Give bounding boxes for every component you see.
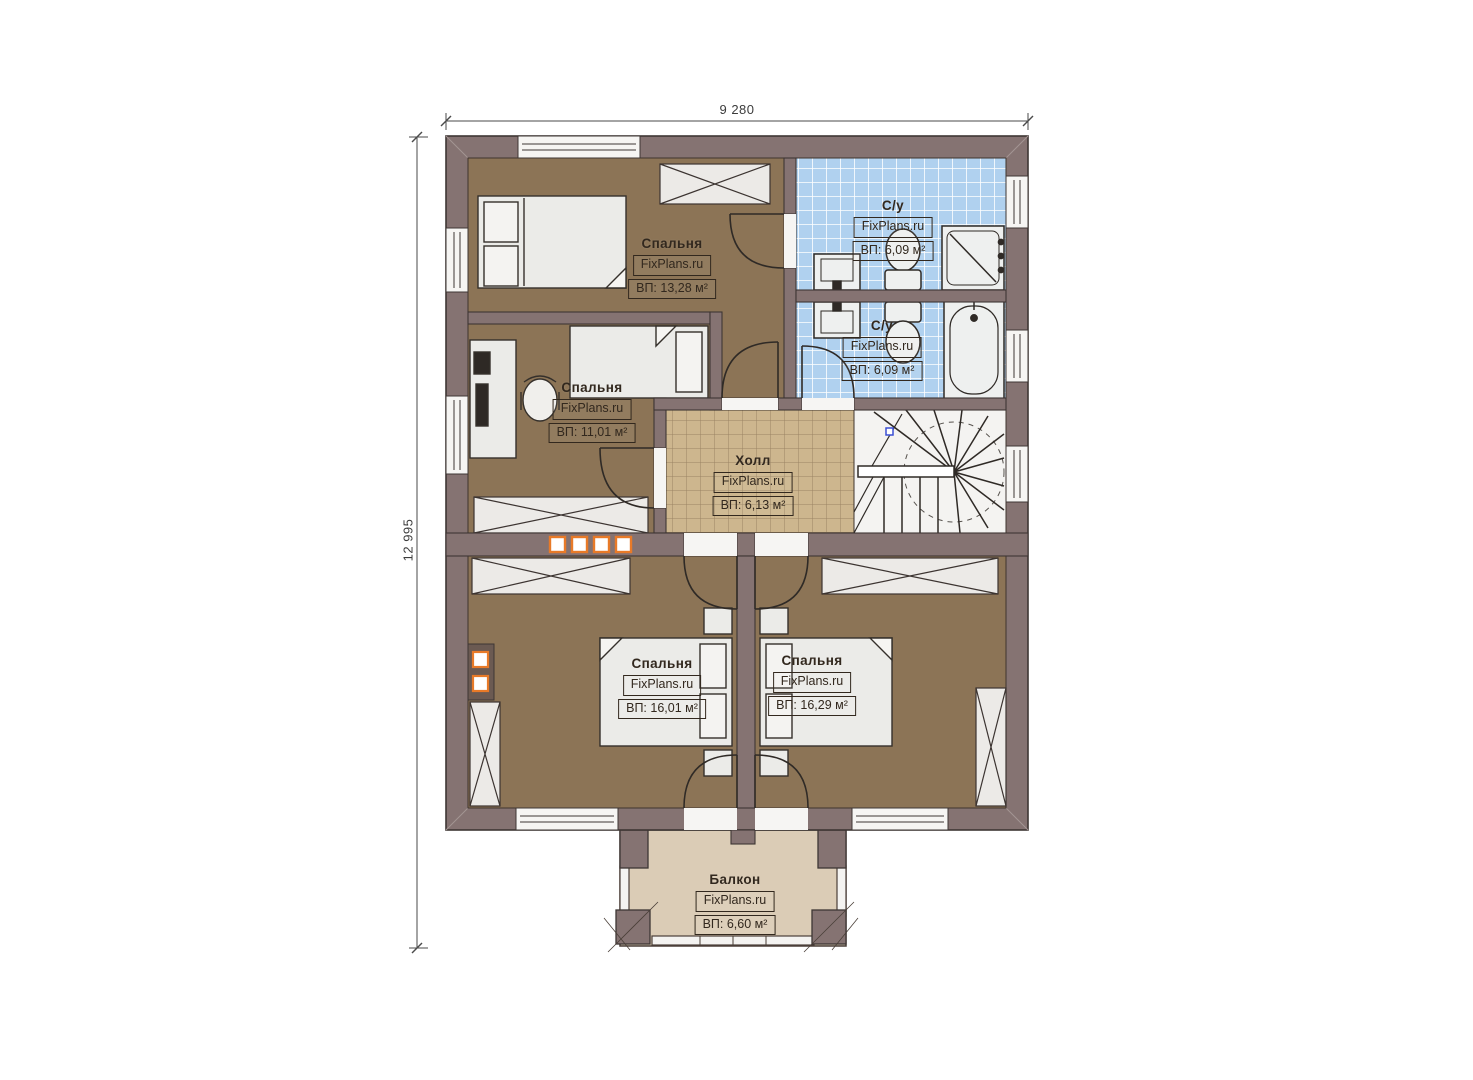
wardrobe bbox=[976, 688, 1006, 806]
wardrobe bbox=[472, 558, 630, 594]
window bbox=[518, 136, 640, 158]
stair-marker bbox=[886, 428, 893, 435]
dimension-height: 12 995 bbox=[401, 519, 416, 562]
room-name: Спальня bbox=[641, 236, 702, 251]
room-name: Спальня bbox=[561, 380, 622, 395]
room-label-hall: Холл FixPlans.ru ВП: 6,13 м² bbox=[713, 453, 794, 516]
window bbox=[446, 396, 468, 474]
wardrobe bbox=[470, 702, 500, 806]
balcony-railing-left bbox=[620, 866, 629, 916]
nightstand bbox=[760, 608, 788, 634]
nightstand bbox=[704, 608, 732, 634]
window bbox=[1006, 446, 1028, 502]
window bbox=[852, 808, 948, 830]
watermark-box: FixPlans.ru bbox=[633, 255, 712, 276]
window bbox=[1006, 176, 1028, 228]
stair-handrail bbox=[858, 466, 954, 477]
area-box: ВП: 6,13 м² bbox=[713, 496, 794, 517]
floor-plan-canvas: 9 280 12 995 Спальня FixPlans.ru ВП: 13,… bbox=[0, 0, 1473, 1080]
room-name: С/у bbox=[871, 318, 893, 333]
area-box: ВП: 13,28 м² bbox=[628, 279, 716, 300]
dimension-width: 9 280 bbox=[719, 102, 754, 117]
window bbox=[516, 808, 618, 830]
area-box: ВП: 16,01 м² bbox=[618, 699, 706, 720]
area-box: ВП: 6,09 м² bbox=[853, 241, 934, 262]
wardrobe bbox=[660, 164, 770, 204]
room-label-bedroom-top-left: Спальня FixPlans.ru ВП: 13,28 м² bbox=[628, 236, 716, 299]
watermark-box: FixPlans.ru bbox=[854, 217, 933, 238]
room-label-bathroom-lower: С/у FixPlans.ru ВП: 6,09 м² bbox=[842, 318, 923, 381]
pillow bbox=[484, 202, 518, 242]
watermark-box: FixPlans.ru bbox=[714, 472, 793, 493]
watermark-box: FixPlans.ru bbox=[696, 891, 775, 912]
nightstand bbox=[760, 750, 788, 776]
balcony-railing-right bbox=[837, 866, 846, 916]
balcony-post bbox=[818, 830, 846, 868]
room-label-balcony: Балкон FixPlans.ru ВП: 6,60 м² bbox=[695, 872, 776, 935]
pillow bbox=[676, 332, 702, 392]
area-box: ВП: 11,01 м² bbox=[549, 423, 636, 444]
pillow bbox=[484, 246, 518, 286]
room-name: Холл bbox=[735, 453, 771, 468]
bathtub bbox=[944, 300, 1004, 400]
room-label-bedroom-mid-left: Спальня FixPlans.ru ВП: 11,01 м² bbox=[549, 380, 636, 443]
watermark-box: FixPlans.ru bbox=[623, 675, 702, 696]
watermark-box: FixPlans.ru bbox=[773, 672, 852, 693]
desk-printer bbox=[474, 352, 490, 374]
area-box: ВП: 16,29 м² bbox=[768, 696, 856, 717]
wardrobe bbox=[822, 558, 998, 594]
shower bbox=[942, 226, 1004, 290]
room-name: Балкон bbox=[709, 872, 760, 887]
wardrobe bbox=[474, 497, 648, 533]
balcony-post bbox=[620, 830, 648, 868]
watermark-box: FixPlans.ru bbox=[553, 399, 632, 420]
desk-monitor bbox=[476, 384, 488, 426]
double-bed bbox=[478, 196, 626, 288]
desk bbox=[470, 340, 516, 458]
area-box: ВП: 6,09 м² bbox=[842, 361, 923, 382]
radiator bbox=[468, 644, 494, 700]
nightstand bbox=[704, 750, 732, 776]
room-name: Спальня bbox=[781, 653, 842, 668]
room-name: С/у bbox=[882, 198, 904, 213]
room-name: Спальня bbox=[631, 656, 692, 671]
window bbox=[446, 228, 468, 292]
room-label-bedroom-bottom-right: Спальня FixPlans.ru ВП: 16,29 м² bbox=[768, 653, 856, 716]
area-box: ВП: 6,60 м² bbox=[695, 915, 776, 936]
window bbox=[1006, 330, 1028, 382]
watermark-box: FixPlans.ru bbox=[843, 337, 922, 358]
room-label-bedroom-bottom-left: Спальня FixPlans.ru ВП: 16,01 м² bbox=[618, 656, 706, 719]
room-label-bathroom-upper: С/у FixPlans.ru ВП: 6,09 м² bbox=[853, 198, 934, 261]
